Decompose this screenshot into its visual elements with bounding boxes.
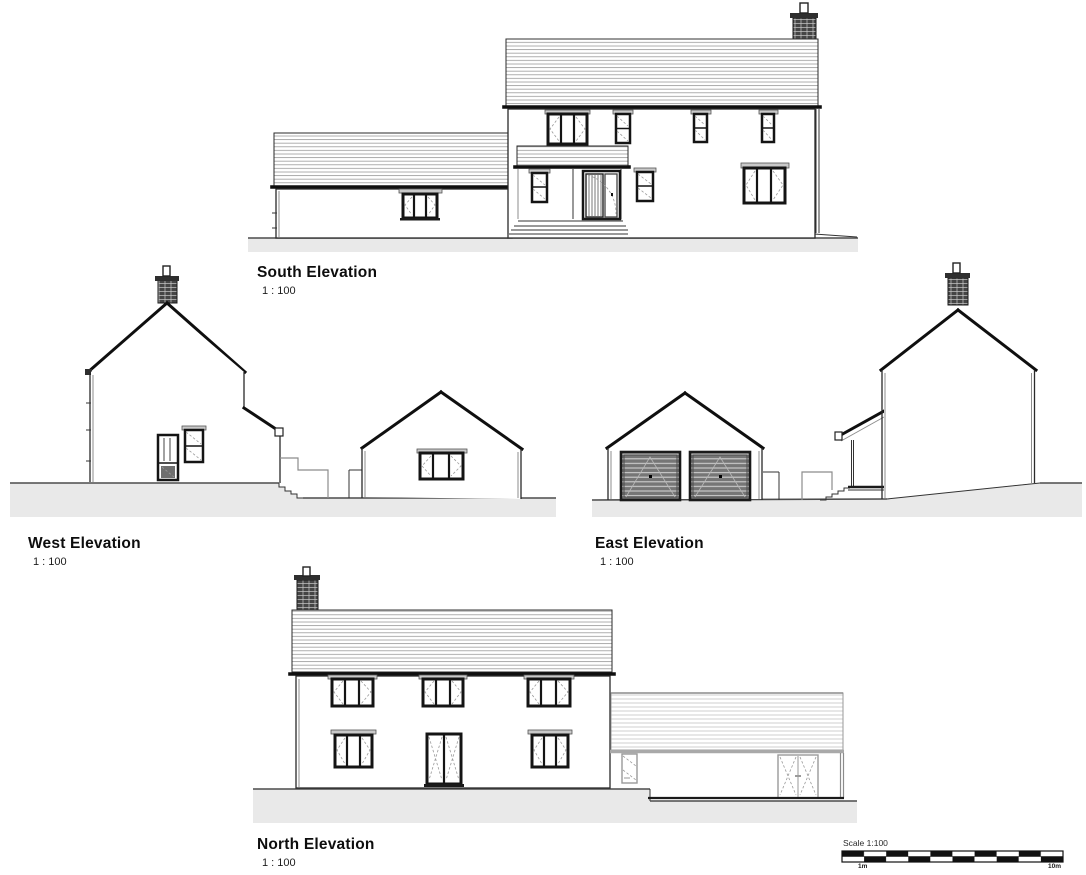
west-garage-window	[417, 449, 467, 479]
south-roof	[504, 39, 820, 107]
scale-bar-left-label: 1m	[858, 863, 867, 870]
south-extension-window	[399, 189, 442, 221]
west-elevation-title: West Elevation	[28, 535, 141, 553]
west-window	[182, 426, 206, 462]
north-elevation-label: North Elevation 1 : 100	[257, 836, 375, 869]
north-french-doors	[424, 734, 464, 787]
east-elevation-drawing	[592, 263, 1082, 517]
north-ground	[253, 789, 857, 823]
east-garage	[607, 393, 779, 500]
north-main-house	[290, 567, 614, 788]
east-chimney	[945, 263, 970, 305]
north-extension-double-doors	[778, 755, 818, 798]
east-retaining-wall	[802, 472, 832, 500]
north-roof	[290, 610, 614, 674]
south-elevation-scale: 1 : 100	[262, 285, 377, 297]
scale-bar-title: Scale 1:100	[843, 838, 888, 848]
west-elevation-scale: 1 : 100	[33, 556, 141, 568]
east-elevation-label: East Elevation 1 : 100	[595, 535, 704, 568]
north-elevation-title: North Elevation	[257, 836, 375, 854]
north-elevation-drawing	[253, 567, 857, 823]
west-main-house	[85, 266, 283, 483]
east-garage-door-right	[690, 452, 750, 500]
east-elevation-title: East Elevation	[595, 535, 704, 553]
south-front-door	[583, 171, 620, 220]
south-downpipe	[816, 109, 819, 233]
west-elevation-label: West Elevation 1 : 100	[28, 535, 141, 568]
east-elevation-scale: 1 : 100	[600, 556, 704, 568]
south-elevation-label: South Elevation 1 : 100	[257, 264, 377, 297]
west-elevation-drawing	[10, 266, 556, 517]
south-elevation-drawing	[248, 3, 858, 252]
south-main-house	[504, 3, 820, 238]
elevations-drawing	[0, 0, 1086, 875]
scale-bar-right-label: 10m	[1048, 863, 1061, 870]
north-elevation-scale: 1 : 100	[262, 857, 375, 869]
north-chimney	[294, 567, 320, 611]
west-retaining-wall	[280, 458, 362, 498]
north-extension-door	[622, 754, 637, 783]
elevation-sheet: South Elevation 1 : 100 West Elevation 1…	[0, 0, 1086, 875]
east-main-house	[881, 263, 1036, 499]
east-porch	[835, 411, 884, 490]
west-chimney	[155, 266, 179, 303]
scale-bar-graphic	[842, 851, 1063, 862]
west-garage	[362, 392, 522, 499]
north-upper-windows	[328, 675, 574, 706]
south-elevation-title: South Elevation	[257, 264, 377, 282]
west-door	[158, 435, 178, 480]
north-extension	[610, 693, 844, 798]
south-extension	[272, 133, 514, 238]
west-catslide-roof	[244, 408, 283, 483]
east-garage-door-left	[621, 452, 680, 500]
east-steps	[820, 488, 850, 500]
